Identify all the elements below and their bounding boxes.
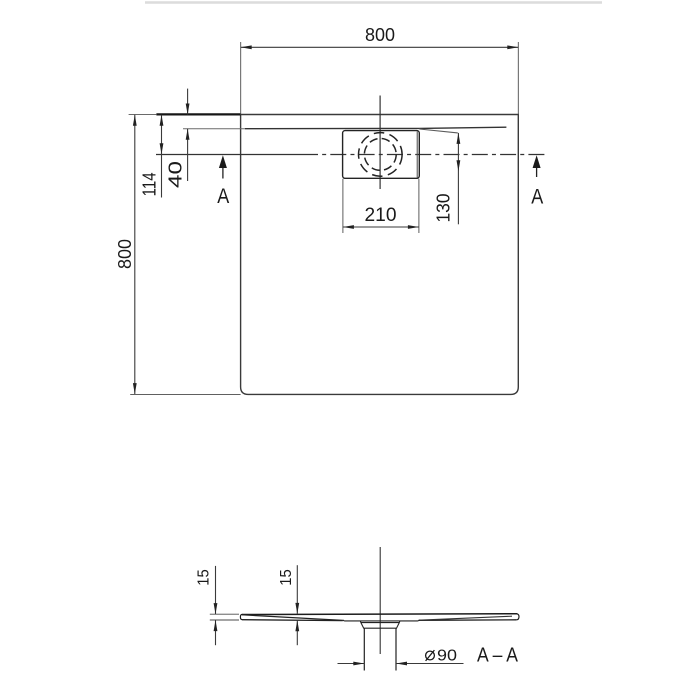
svg-text:40: 40	[165, 161, 185, 188]
svg-text:210: 210	[365, 205, 397, 226]
svg-text:800: 800	[365, 24, 395, 45]
svg-text:A: A	[217, 185, 229, 208]
svg-text:130: 130	[434, 194, 454, 223]
svg-text:15: 15	[278, 569, 295, 586]
svg-text:A – A: A – A	[477, 645, 519, 667]
svg-text:114: 114	[140, 172, 160, 196]
svg-text:A: A	[531, 186, 543, 209]
svg-text:15: 15	[195, 569, 212, 586]
svg-text:90: 90	[437, 647, 457, 664]
svg-text:800: 800	[114, 239, 135, 269]
